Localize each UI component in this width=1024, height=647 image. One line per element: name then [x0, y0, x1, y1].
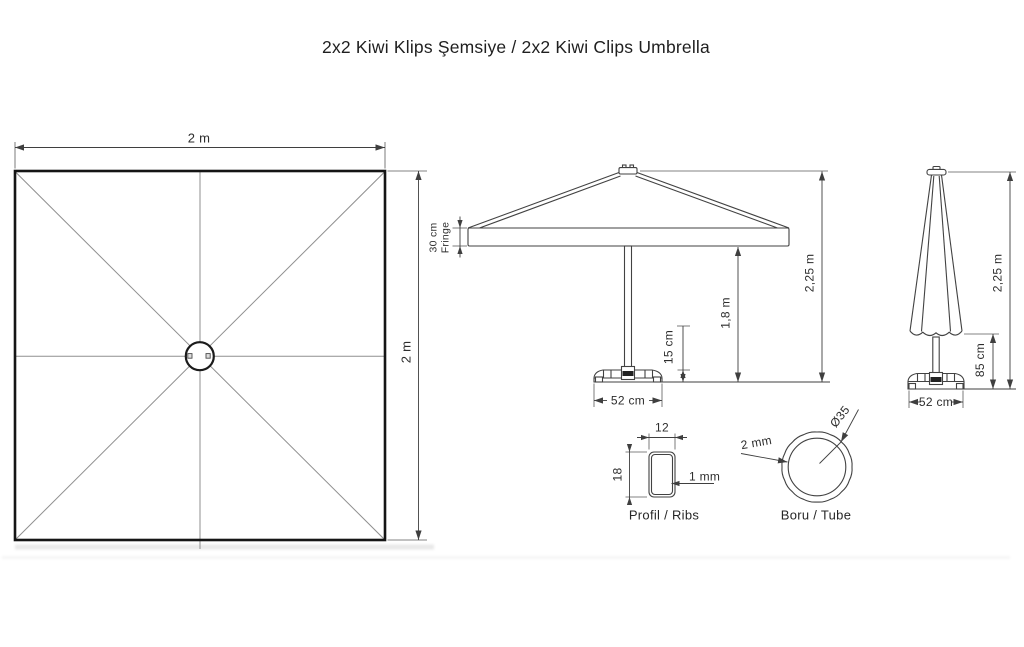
top-view-height-label: 2 m: [399, 341, 414, 364]
top-view-width-label: 2 m: [188, 131, 211, 146]
base-foot-right: [654, 377, 661, 382]
base-foot-left: [596, 377, 603, 382]
rib-height-label: 18: [611, 468, 625, 482]
closed-base-width-label: 52 cm: [919, 395, 953, 409]
square-shadow: [15, 545, 434, 550]
baseline-shadow: [2, 557, 1010, 559]
closed-base: [908, 373, 964, 390]
closed-base-foot-right: [957, 384, 964, 390]
rib-wall-label: 1 mm: [689, 470, 720, 484]
rib-outer-wall: [649, 452, 675, 497]
drawing-title: 2x2 Kiwi Klips Şemsiye / 2x2 Kiwi Clips …: [322, 37, 710, 57]
open-total-height-label: 2,25 m: [803, 254, 817, 293]
technical-drawing-canvas: 2x2 Kiwi Klips Şemsiye / 2x2 Kiwi Clips …: [0, 0, 1024, 647]
fringe-word-label: Fringe: [440, 222, 452, 254]
closed-pole-clamp-band: [931, 377, 942, 382]
hub-clip-right: [206, 354, 210, 359]
tube-profile-caption: Boru / Tube: [781, 508, 852, 523]
sheet-background: [0, 0, 1024, 647]
drawing-sheet: 2x2 Kiwi Klips Şemsiye / 2x2 Kiwi Clips …: [0, 0, 1024, 647]
closed-pole: [933, 337, 939, 375]
open-base-width-label: 52 cm: [611, 394, 645, 408]
closed-base-foot-left: [909, 384, 916, 390]
open-pole: [625, 246, 632, 368]
fringe-band: [468, 228, 789, 246]
base-height-label: 15 cm: [662, 330, 676, 364]
rib-profile-caption: Profil / Ribs: [629, 508, 700, 523]
canopy-clearance-label: 85 cm: [973, 343, 987, 377]
closed-total-height-label: 2,25 m: [991, 254, 1005, 293]
fringe-size-label: 30 cm: [428, 222, 440, 252]
pole-clamp-band: [623, 371, 634, 376]
clear-height-label: 1,8 m: [719, 297, 733, 329]
hub-clip-left: [188, 354, 192, 359]
rib-width-label: 12: [655, 421, 669, 435]
